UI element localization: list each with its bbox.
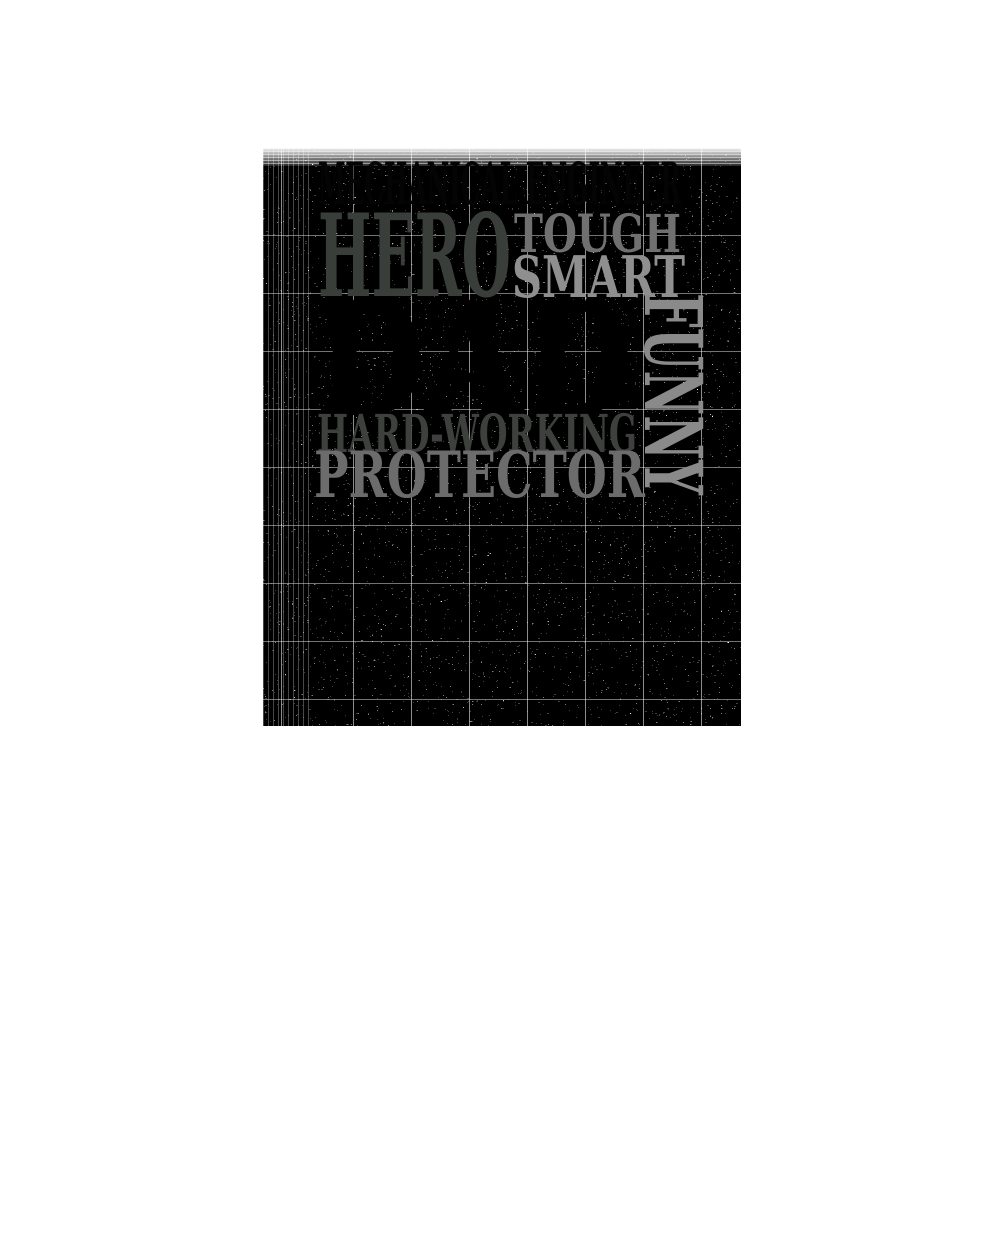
page-background: MECHANICAL ENGINEER HERO TOUGH SMART DAD… [0, 0, 1000, 1250]
word-protector: PROTECTOR [314, 438, 646, 513]
word-art-design: MECHANICAL ENGINEER HERO TOUGH SMART DAD… [263, 148, 741, 726]
words-layer: MECHANICAL ENGINEER HERO TOUGH SMART DAD… [263, 148, 741, 726]
